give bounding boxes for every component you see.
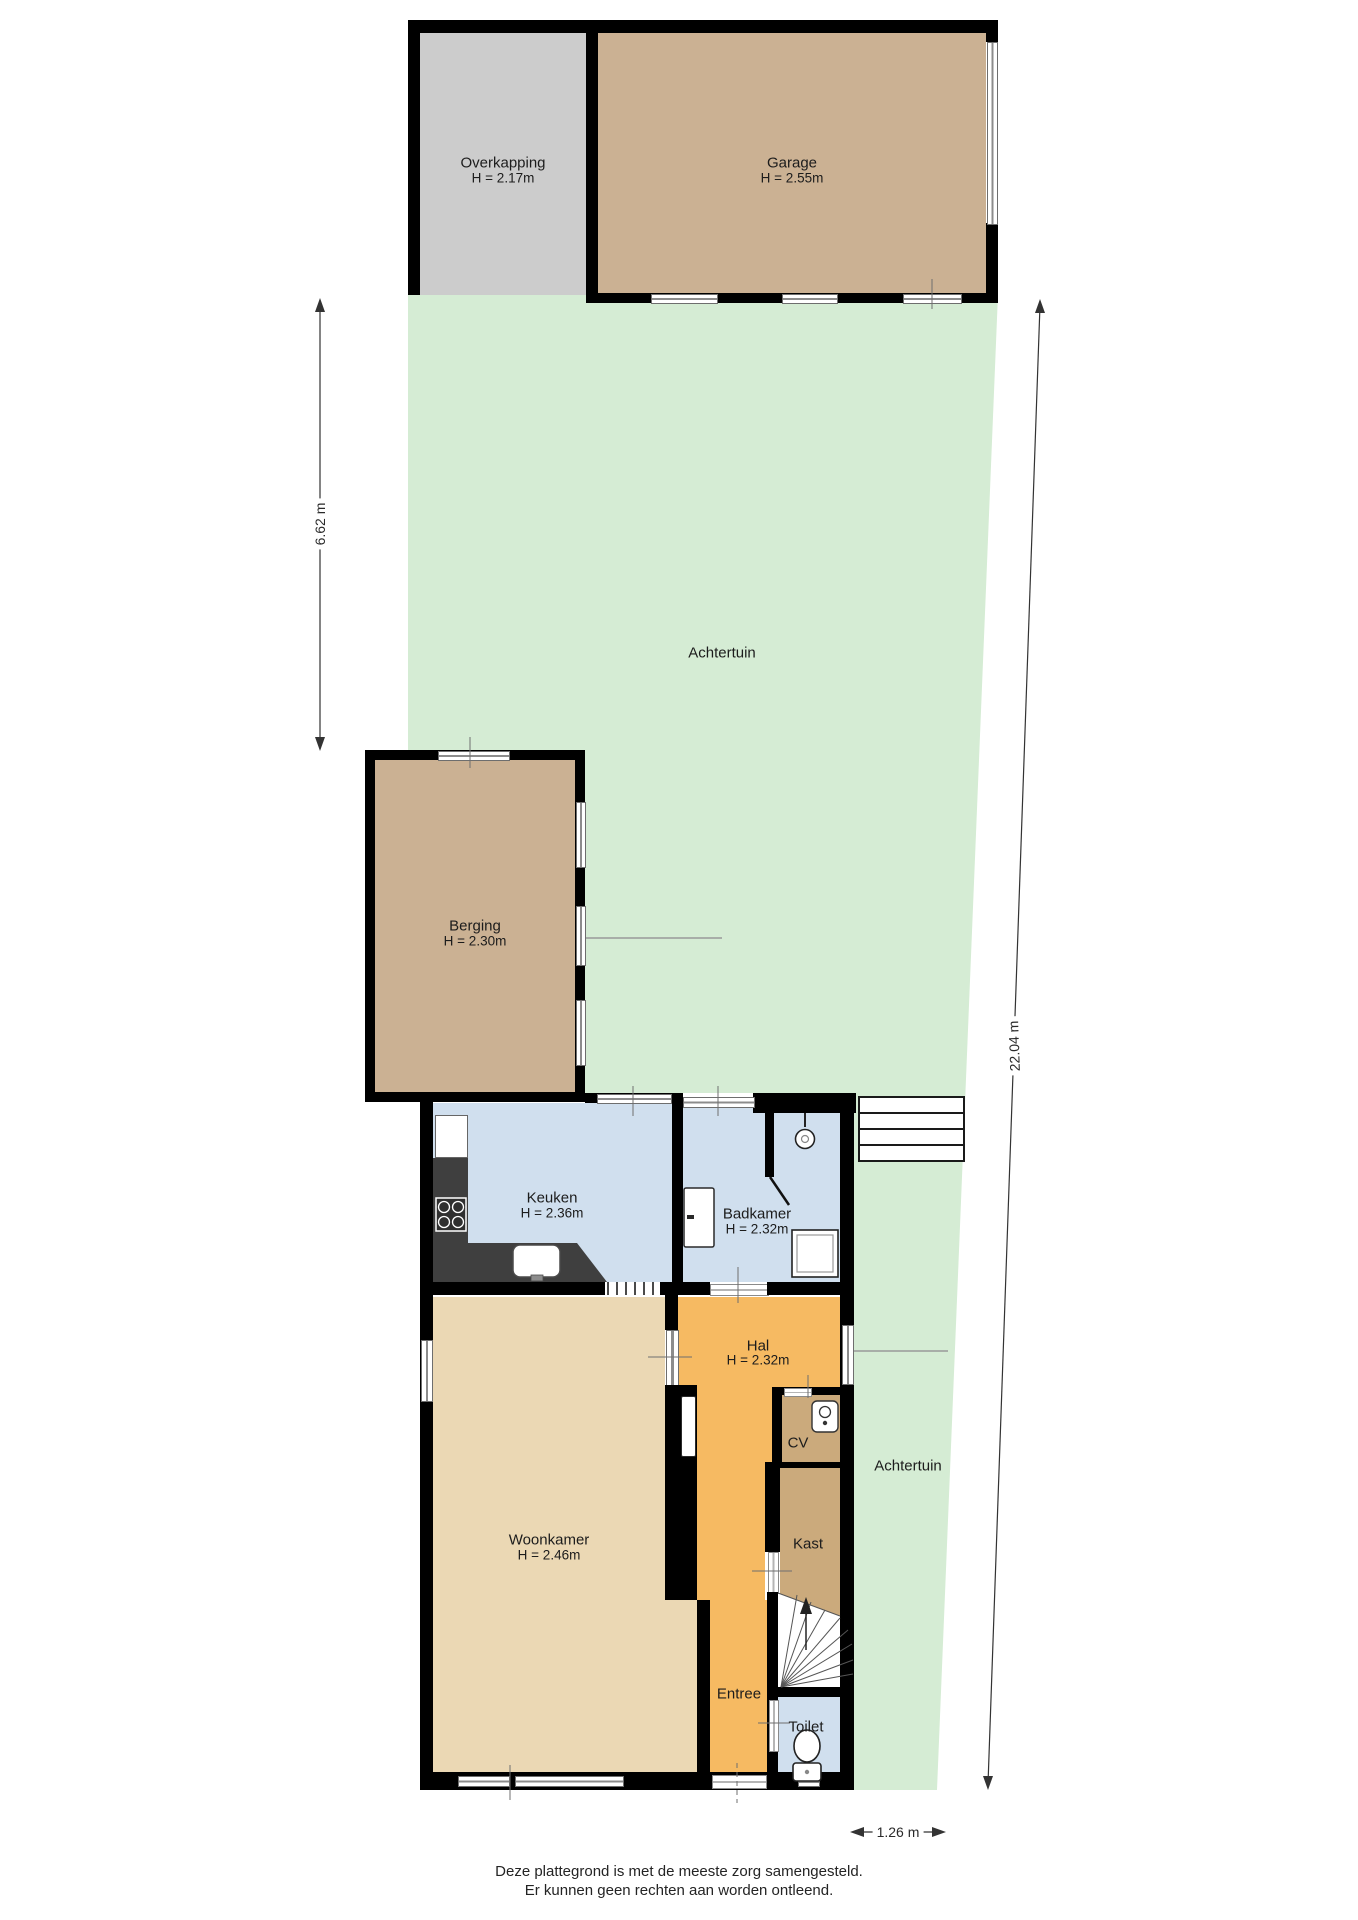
room-label-entree: Entree [717, 1685, 761, 1702]
woonkamer-door-leaf [681, 1396, 696, 1457]
dimension-label-bottom: 1.26 m [873, 1823, 924, 1841]
kast-floor [780, 1468, 840, 1593]
room-label-overkapping: Overkapping [460, 154, 545, 171]
wall [408, 33, 420, 295]
dimension-label-right: 22.04 m [1004, 1016, 1024, 1075]
garage-rear-window [782, 294, 838, 304]
garage-rear-window [903, 294, 962, 304]
berging-window [576, 906, 586, 966]
dimension-label-left: 6.62 m [311, 499, 329, 550]
wall [986, 20, 998, 42]
toilet-window [798, 1777, 820, 1787]
wall [365, 750, 375, 1102]
badkamer-door [710, 1284, 769, 1296]
kast-door [768, 1552, 779, 1594]
room-height-overkapping: H = 2.17m [472, 172, 535, 187]
hal-woonkamer-door [666, 1330, 679, 1387]
room-label-kast: Kast [793, 1535, 823, 1552]
room-label-achtertuin-upper: Achtertuin [688, 644, 756, 661]
garage-rear-window [651, 294, 718, 304]
kitchen-appliance [435, 1115, 468, 1158]
wall [772, 1387, 782, 1462]
berging-window [438, 751, 510, 761]
wall [767, 1282, 853, 1295]
toilet-floor [778, 1697, 840, 1783]
berging-window [576, 802, 586, 868]
room-label-berging: Berging [449, 917, 501, 934]
toilet-door [769, 1700, 779, 1752]
wall [420, 1282, 605, 1295]
wall [408, 20, 998, 33]
wall [660, 1282, 710, 1295]
wall [767, 1592, 778, 1687]
wall [767, 1687, 853, 1697]
footer-disclaimer-line2: Er kunnen geen rechten aan worden ontlee… [0, 1882, 1358, 1899]
keuken-woonkamer-opening [605, 1282, 660, 1295]
wall [420, 1093, 433, 1790]
room-label-cv: CV [788, 1434, 809, 1451]
woonkamer-front-window [515, 1776, 624, 1787]
wall [586, 20, 598, 303]
room-label-garage: Garage [767, 154, 817, 171]
cv-floor [782, 1395, 840, 1462]
footer-disclaimer-line1: Deze plattegrond is met de meeste zorg s… [0, 1863, 1358, 1880]
wall [697, 1600, 710, 1790]
room-height-hal: H = 2.32m [727, 1354, 790, 1369]
wall [986, 223, 998, 303]
badkamer-floor [683, 1103, 840, 1282]
badkamer-window [683, 1097, 755, 1108]
room-label-toilet: Toilet [788, 1718, 823, 1735]
hal-back-door [842, 1325, 854, 1385]
wall [765, 1468, 780, 1552]
garage-side-window [987, 42, 998, 225]
wall [672, 1093, 683, 1295]
hal-corridor-floor [697, 1462, 765, 1600]
hal-corridor-floor [697, 1387, 772, 1462]
woonkamer-front-window [458, 1776, 510, 1787]
kitchen-counter [433, 1243, 577, 1282]
room-height-berging: H = 2.30m [444, 935, 507, 950]
room-label-badkamer: Badkamer [723, 1205, 791, 1222]
wall [840, 1093, 854, 1790]
room-height-badkamer: H = 2.32m [726, 1223, 789, 1238]
room-height-woonkamer: H = 2.46m [518, 1549, 581, 1564]
berging-window [576, 1000, 586, 1066]
room-label-woonkamer: Woonkamer [509, 1531, 590, 1548]
cv-door [784, 1388, 812, 1397]
room-height-keuken: H = 2.36m [521, 1207, 584, 1222]
garden-steps [858, 1144, 965, 1162]
room-height-garage: H = 2.55m [761, 172, 824, 187]
stairs-floor [778, 1593, 840, 1687]
wall [665, 1295, 678, 1330]
room-label-achtertuin-lower: Achtertuin [874, 1457, 942, 1474]
woonkamer-side-window [421, 1340, 433, 1402]
woonkamer-floor [665, 1600, 697, 1772]
room-label-keuken: Keuken [527, 1189, 578, 1206]
keuken-window [597, 1094, 672, 1104]
wall [365, 1092, 585, 1102]
front-door [712, 1775, 767, 1789]
floorplan-canvas: Overkapping H = 2.17m Garage H = 2.55m A… [0, 0, 1358, 1920]
